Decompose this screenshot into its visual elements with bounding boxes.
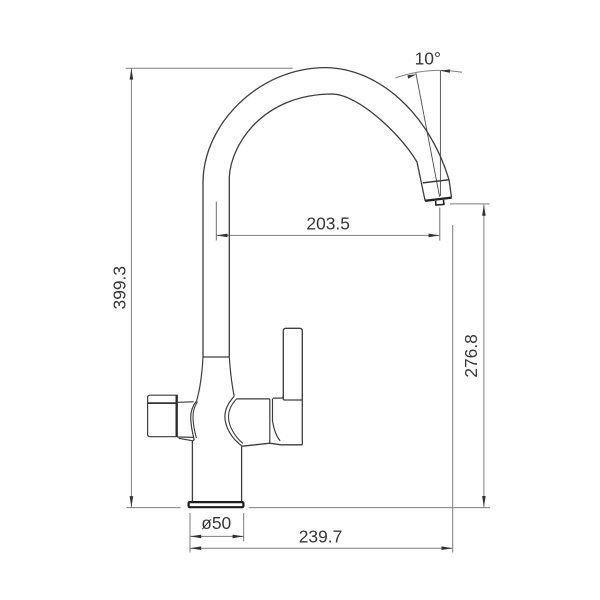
svg-text:399.3: 399.3 (109, 266, 129, 310)
svg-text:203.5: 203.5 (306, 213, 350, 233)
svg-text:ø50: ø50 (201, 513, 231, 533)
svg-text:276.8: 276.8 (461, 334, 481, 378)
svg-text:10°: 10° (415, 48, 441, 68)
svg-text:239.7: 239.7 (299, 527, 343, 547)
